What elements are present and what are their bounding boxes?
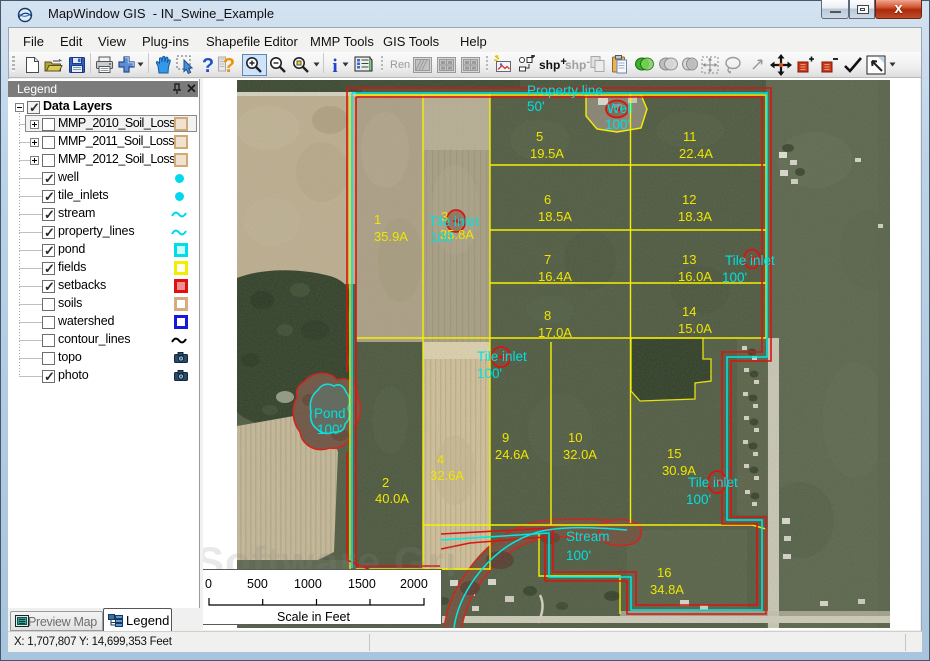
svg-text:100': 100' <box>722 270 747 285</box>
svg-text:15.0A: 15.0A <box>678 321 712 336</box>
svg-text:1: 1 <box>374 212 381 227</box>
svg-text:100': 100' <box>566 548 591 563</box>
svg-text:100': 100' <box>686 492 711 507</box>
svg-text:40.0A: 40.0A <box>375 491 409 506</box>
svg-text:35.9A: 35.9A <box>374 229 408 244</box>
svg-text:Pond: Pond <box>314 406 346 421</box>
svg-text:22.4A: 22.4A <box>679 146 713 161</box>
svg-text:100': 100' <box>430 230 455 245</box>
svg-text:16.4A: 16.4A <box>538 269 572 284</box>
svg-text:18.3A: 18.3A <box>678 209 712 224</box>
svg-text:9: 9 <box>502 430 509 445</box>
svg-text:?: ? <box>202 55 214 75</box>
svg-text:Tile inlet: Tile inlet <box>477 349 527 364</box>
svg-text:5: 5 <box>536 129 543 144</box>
svg-text:8: 8 <box>544 308 551 323</box>
svg-text:15: 15 <box>667 446 681 461</box>
svg-text:7: 7 <box>544 252 551 267</box>
svg-text:17.0A: 17.0A <box>538 325 572 340</box>
svg-text:2000: 2000 <box>400 577 428 591</box>
svg-text:?: ? <box>223 55 234 75</box>
svg-text:Well: Well <box>607 101 633 116</box>
svg-text:Stream: Stream <box>566 529 610 544</box>
svg-text:14: 14 <box>682 304 696 319</box>
svg-text:34.8A: 34.8A <box>650 582 684 597</box>
svg-text:6: 6 <box>544 192 551 207</box>
svg-text:13: 13 <box>682 252 696 267</box>
svg-text:Scale in Feet: Scale in Feet <box>277 610 350 624</box>
svg-text:32.6A: 32.6A <box>430 468 464 483</box>
svg-text:2: 2 <box>382 475 389 490</box>
svg-text:10: 10 <box>568 430 582 445</box>
svg-text:Property line: Property line <box>527 83 603 98</box>
svg-text:18.5A: 18.5A <box>538 209 572 224</box>
svg-text:100': 100' <box>605 117 630 132</box>
svg-text:11: 11 <box>683 129 697 144</box>
svg-text:32.0A: 32.0A <box>563 447 597 462</box>
svg-text:Tile inlet: Tile inlet <box>725 253 775 268</box>
svg-text:500: 500 <box>247 577 268 591</box>
svg-text:19.5A: 19.5A <box>530 146 564 161</box>
svg-text:50': 50' <box>527 99 545 114</box>
svg-text:16.0A: 16.0A <box>678 269 712 284</box>
svg-text:16: 16 <box>657 565 671 580</box>
svg-text:Tile inlet: Tile inlet <box>429 214 479 229</box>
svg-text:100': 100' <box>317 422 342 437</box>
svg-text:24.6A: 24.6A <box>495 447 529 462</box>
svg-text:4: 4 <box>437 452 444 467</box>
svg-text:100': 100' <box>477 366 502 381</box>
svg-text:1500: 1500 <box>348 577 376 591</box>
svg-text:12: 12 <box>682 192 696 207</box>
svg-text:Tile inlet: Tile inlet <box>688 475 738 490</box>
svg-text:i: i <box>332 56 337 75</box>
svg-text:1000: 1000 <box>294 577 322 591</box>
svg-text:0: 0 <box>205 577 212 591</box>
